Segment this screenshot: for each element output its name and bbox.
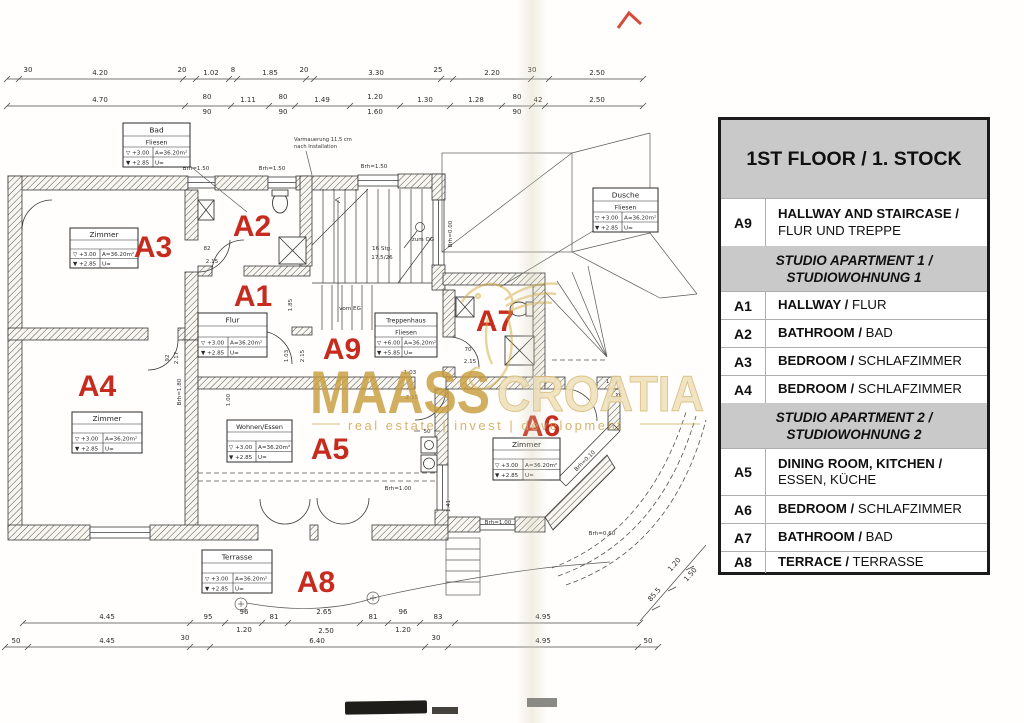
room-level: ▼ +2.85: [595, 226, 619, 232]
room-info-box-zimmer-a3: Zimmer ▽ +3.00 A=36.20m² ▼ +2.85 U=: [70, 228, 138, 268]
dim-label: 85.5: [646, 586, 662, 603]
room-level: ▽ +3.00: [229, 445, 253, 451]
stair-to-upper-label: zum OG: [412, 237, 434, 243]
room-code: A3: [721, 348, 766, 375]
room-name-en: DINING ROOM, KITCHEN /: [778, 456, 942, 471]
dim-label: 2.20: [484, 69, 500, 77]
parapet-label: Brh=0.00: [448, 220, 454, 247]
room-code: A7: [721, 524, 766, 551]
stair-from-ground-label: vom EG: [339, 306, 361, 312]
stair-ratio-label: 17,5/26: [371, 255, 393, 261]
room-level: ▽ +3.00: [495, 463, 519, 469]
dim-label: 1.50: [682, 566, 698, 583]
room-code-a5: A5: [311, 433, 349, 466]
room-title: Bad: [149, 126, 164, 135]
room-level: ▼ +5.85: [377, 351, 401, 357]
dim-label: 1.20: [367, 93, 383, 101]
parapet-label: Brh=0.60: [589, 531, 616, 537]
room-level: ▼ +2.85: [205, 587, 229, 593]
dim-label: 80: [203, 93, 212, 101]
staircase: 16 Stg. 17,5/26 zum OG vom EG: [312, 189, 434, 330]
room-title: Treppenhaus: [385, 318, 426, 325]
scan-smudge-artifact: [527, 698, 557, 707]
dim-label: 1.00: [226, 393, 232, 406]
room-name-de: SCHLAFZIMMER: [858, 353, 962, 368]
dim-label: 81: [369, 613, 378, 621]
dim-label: 4.95: [535, 637, 551, 645]
room-name-de: BAD: [866, 529, 893, 544]
dim-label: 30: [24, 66, 33, 74]
section-line-1: STUDIO APARTMENT 2 /: [721, 409, 987, 426]
room-description: BATHROOM / BAD: [766, 323, 899, 344]
room-title: Zimmer: [89, 230, 119, 239]
dim-label: 2.50: [589, 96, 605, 104]
room-description: TERRACE / TERRASSE: [766, 552, 930, 573]
diagonal-dim: 85.5 1.20 1.50: [640, 545, 706, 621]
top-dim-row-1: 30 4.20 20 1.02 8 1.85 20 3.30 25 2.20 3…: [4, 66, 646, 82]
door-size-label: 2.15: [206, 259, 219, 265]
dusche-box-leader: [500, 231, 593, 287]
dim-label: 80: [279, 93, 288, 101]
room-level: ▼ +2.85: [73, 262, 97, 268]
room-name-en: BATHROOM /: [778, 325, 862, 340]
room-code-a3: A3: [134, 231, 172, 264]
dim-label: 1.20: [395, 626, 411, 634]
dim-label: 8: [231, 66, 235, 74]
dim-label: 1.02: [203, 69, 219, 77]
room-level: ▽ +3.00: [595, 216, 619, 222]
legend-row-a2: A2 BATHROOM / BAD: [721, 319, 987, 347]
room-info-box-treppenhaus: Treppenhaus Fliesen ▽ +6.00 A=36.20m² ▼ …: [375, 313, 437, 357]
room-area: A=36.20m²: [404, 340, 436, 347]
watermark-brand-light: CROATIA: [497, 366, 704, 422]
room-info-box-zimmer-a4: Zimmer ▽ +3.00 A=36.20m² ▼ +2.85 U=: [72, 412, 142, 453]
dim-label: 90: [513, 108, 522, 116]
legend-row-a6: A6 BEDROOM / SCHLAFZIMMER: [721, 495, 987, 523]
dim-label: 81: [270, 613, 279, 621]
room-name-en: BEDROOM /: [778, 353, 854, 368]
dim-label: 4.45: [99, 637, 115, 645]
room-level: ▽ +3.00: [201, 341, 225, 347]
room-area: A=36.20m²: [105, 436, 137, 443]
dim-label: 6.40: [309, 637, 325, 645]
room-name-de: ESSEN, KÜCHE: [778, 472, 876, 487]
bottom-dim-row-2: 50 4.45 30 6.40 30 4.95 50: [2, 634, 661, 650]
room-code: A8: [721, 552, 766, 573]
room-description: BEDROOM / SCHLAFZIMMER: [766, 379, 968, 400]
room-name-de: BAD: [866, 325, 893, 340]
legend-row-a7: A7 BATHROOM / BAD: [721, 523, 987, 551]
room-info-box-zimmer-a6: Zimmer ▽ +3.00 A=36.20m² ▼ +2.85 U=: [493, 438, 560, 480]
room-title: Zimmer: [92, 414, 122, 423]
parapet-label: Brh=1.80: [177, 378, 183, 405]
room-level: ▽ +3.00: [126, 151, 150, 157]
room-name-de: TERRASSE: [853, 554, 924, 569]
scan-smudge-artifact: [432, 707, 458, 714]
dim-label: 2.50: [318, 627, 334, 635]
room-level: ▼ +2.85: [126, 161, 150, 167]
room-description: HALLWAY AND STAIRCASE / FLUR UND TREPPE: [766, 204, 987, 241]
stair-steps-label: 16 Stg.: [372, 246, 392, 252]
legend-row-a8: A8 TERRACE / TERRASSE: [721, 551, 987, 573]
door-size-label: 70: [464, 347, 472, 353]
room-code: A5: [721, 449, 766, 495]
legend-row-a9: A9 HALLWAY AND STAIRCASE / FLUR UND TREP…: [721, 198, 987, 246]
dim-label: 30: [181, 634, 190, 642]
legend-row-a3: A3 BEDROOM / SCHLAFZIMMER: [721, 347, 987, 375]
room-u: U=: [155, 161, 164, 167]
dim-label: 1.28: [468, 96, 484, 104]
room-area: A=36.20m²: [102, 251, 134, 258]
room-u: U=: [235, 587, 244, 593]
room-name-en: BATHROOM /: [778, 529, 862, 544]
dim-label: 90: [279, 108, 288, 116]
scan-smudge-artifact: [345, 700, 427, 714]
room-name-de: SCHLAFZIMMER: [858, 381, 962, 396]
dim-label: 90: [203, 108, 212, 116]
room-level: ▽ +3.00: [205, 577, 229, 583]
section-line-1: STUDIO APARTMENT 1 /: [721, 252, 987, 269]
room-u: U=: [102, 262, 111, 268]
room-title: Wohnen/Essen: [236, 423, 283, 431]
room-level: ▼ +2.85: [75, 447, 99, 453]
dim-label: 96: [399, 608, 408, 616]
dim-label: 4.95: [535, 613, 551, 621]
room-name-en: BEDROOM /: [778, 501, 854, 516]
room-area: A=36.20m²: [624, 215, 656, 222]
room-area: A=36.20m²: [235, 576, 267, 583]
dim-label: 1.60: [367, 108, 383, 116]
legend-table: 1ST FLOOR / 1. STOCK A9 HALLWAY AND STAI…: [718, 117, 990, 575]
parapet-label: Brh=1.50: [259, 166, 286, 172]
door-size-label: 92: [165, 354, 171, 361]
dim-label: 20: [178, 66, 187, 74]
door-size-label: 2.17: [174, 351, 180, 364]
watermark-tagline: real estate | invest | development: [348, 418, 623, 433]
room-title: Terrasse: [221, 553, 253, 562]
room-description: BEDROOM / SCHLAFZIMMER: [766, 351, 968, 372]
room-level: ▼ +2.85: [201, 351, 225, 357]
dim-label: 1.03: [284, 349, 290, 362]
dim-label: 1.20: [666, 556, 682, 573]
door-size-label: 82: [203, 246, 210, 252]
room-code: A4: [721, 376, 766, 403]
masonry-note-line1: Varmauerung 11,5 cm: [294, 137, 352, 143]
room-level: ▽ +3.00: [75, 437, 99, 443]
room-area: A=36.20m²: [258, 444, 290, 451]
dim-label: 20: [300, 66, 309, 74]
dim-label: 2.50: [589, 69, 605, 77]
room-code-a4: A4: [78, 370, 117, 403]
section-line-2: STUDIOWOHNUNG 2: [721, 426, 987, 443]
dim-label: 1.49: [314, 96, 330, 104]
parapet-label: Brh=1.00: [485, 520, 512, 526]
top-dim-row-2: 4.70 80 90 1.11 80 90 1.49 1.20 1.60 1.3…: [4, 93, 646, 116]
dim-label: 4.20: [92, 69, 108, 77]
room-material: Fliesen: [146, 140, 168, 147]
room-level: ▼ +2.85: [495, 473, 519, 479]
dim-label: 80: [513, 93, 522, 101]
dim-label: 25: [434, 66, 443, 74]
red-pen-mark: [618, 13, 641, 28]
room-title: Flur: [225, 316, 240, 325]
masonry-note-line2: nach Installation: [294, 144, 337, 150]
dim-label: 50: [644, 637, 653, 645]
room-code: A2: [721, 320, 766, 347]
room-info-box-dusche: Dusche Fliesen ▽ +3.00 A=36.20m² ▼ +2.85…: [593, 188, 658, 232]
dim-label: 1.41: [446, 499, 452, 512]
room-name-en: HALLWAY /: [778, 297, 848, 312]
legend-title: 1ST FLOOR / 1. STOCK: [721, 120, 987, 198]
room-area: A=36.20m²: [155, 150, 187, 157]
room-code-a2: A2: [233, 210, 271, 243]
room-name-de: FLUR UND TREPPE: [778, 223, 901, 238]
room-code: A6: [721, 496, 766, 523]
room-material: Fliesen: [395, 330, 417, 337]
floor-plan-page: 30 4.20 20 1.02 8 1.85 20 3.30 25 2.20 3…: [0, 0, 1024, 723]
room-level: ▼ +2.85: [229, 455, 253, 461]
room-code: A1: [721, 292, 766, 319]
legend-section-apartment-1: STUDIO APARTMENT 1 / STUDIOWOHNUNG 1: [721, 246, 987, 291]
room-info-box-flur: Flur ▽ +3.00 A=36.20m² ▼ +2.85 U=: [198, 313, 267, 357]
room-area: A=36.20m²: [230, 340, 262, 347]
room-name-en: BEDROOM /: [778, 381, 854, 396]
dim-label: 1.85: [262, 69, 278, 77]
room-u: U=: [404, 351, 413, 357]
room-area: A=36.20m²: [525, 462, 557, 469]
room-description: BEDROOM / SCHLAFZIMMER: [766, 499, 968, 520]
dim-label: 1.85: [288, 298, 294, 311]
bottom-dim-row-1: 4.45 95 96 1.20 81 2.65 2.50 81 96 1.20 …: [20, 608, 643, 635]
room-info-box-bad: Bad Fliesen ▽ +3.00 A=36.20m² ▼ +2.85 U=: [123, 123, 190, 167]
room-code: A9: [721, 199, 766, 246]
dim-label: 3.30: [368, 69, 384, 77]
dim-label: 4.45: [99, 613, 115, 621]
dim-label: 2.15: [300, 349, 306, 362]
room-title: Dusche: [612, 191, 640, 200]
dim-label: 50: [12, 637, 21, 645]
dim-label: 42: [534, 96, 543, 104]
dim-label: 83: [434, 613, 443, 621]
legend-row-a4: A4 BEDROOM / SCHLAFZIMMER: [721, 375, 987, 403]
room-name-en: TERRACE /: [778, 554, 849, 569]
room-level: ▽ +3.00: [73, 252, 97, 258]
room-level: ▽ +6.00: [377, 341, 401, 347]
dim-label: 4.70: [92, 96, 108, 104]
room-code-a8: A8: [297, 566, 335, 599]
room-name-de: FLUR: [852, 297, 886, 312]
dim-label: 95: [204, 613, 213, 621]
room-code-a1: A1: [234, 280, 272, 313]
note-leader: [306, 151, 312, 175]
room-name-de: SCHLAFZIMMER: [858, 501, 962, 516]
room-u: U=: [105, 447, 114, 453]
dim-label: 1.30: [417, 96, 433, 104]
room-material: Fliesen: [615, 205, 637, 212]
room-u: U=: [230, 351, 239, 357]
section-line-2: STUDIOWOHNUNG 1: [721, 269, 987, 286]
room-name-en: HALLWAY AND STAIRCASE /: [778, 206, 959, 221]
room-description: DINING ROOM, KITCHEN / ESSEN, KÜCHE: [766, 454, 987, 491]
room-u: U=: [258, 455, 267, 461]
room-description: HALLWAY / FLUR: [766, 295, 892, 316]
legend-section-apartment-2: STUDIO APARTMENT 2 / STUDIOWOHNUNG 2: [721, 403, 987, 448]
parapet-label: Brh=1.50: [361, 164, 388, 170]
room-u: U=: [525, 473, 534, 479]
parapet-label: Brh=1.00: [385, 486, 412, 492]
room-info-box-terrasse: Terrasse ▽ +3.00 A=36.20m² ▼ +2.85 U=: [202, 550, 272, 593]
dim-label: 1.20: [236, 626, 252, 634]
dim-label: 30: [432, 634, 441, 642]
dim-label: 30: [528, 66, 537, 74]
dim-label: 2.65: [316, 608, 332, 616]
room-u: U=: [624, 226, 633, 232]
room-description: BATHROOM / BAD: [766, 527, 899, 548]
legend-row-a1: A1 HALLWAY / FLUR: [721, 291, 987, 319]
dim-label: 1.11: [240, 96, 256, 104]
legend-row-a5: A5 DINING ROOM, KITCHEN / ESSEN, KÜCHE: [721, 448, 987, 495]
room-info-box-wohnen-essen: Wohnen/Essen ▽ +3.00 A=36.20m² ▼ +2.85 U…: [227, 420, 292, 462]
watermark-brand-bold: MAASS: [310, 359, 490, 426]
